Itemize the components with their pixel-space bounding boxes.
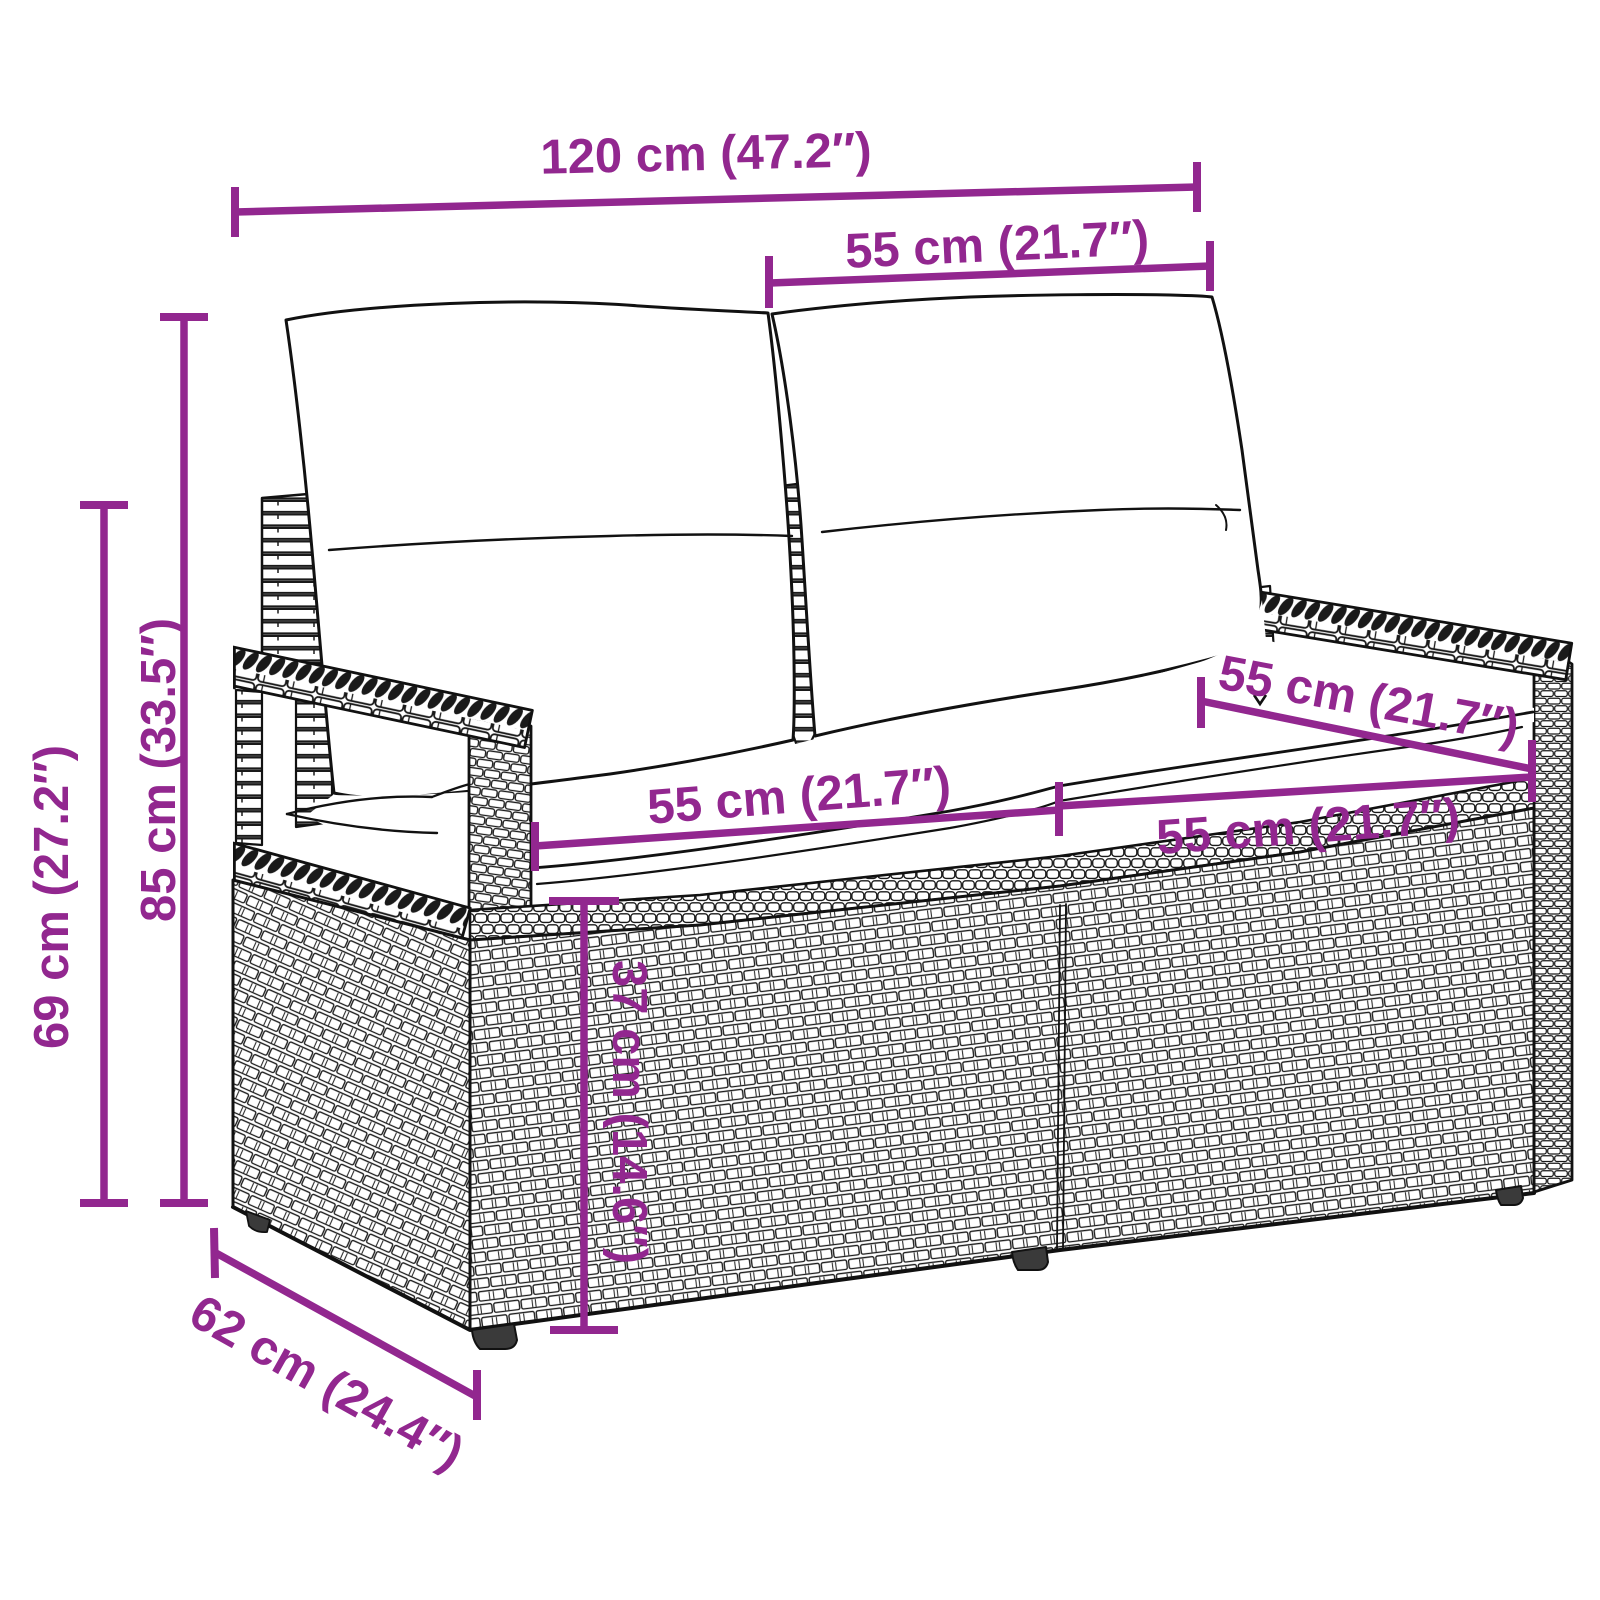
svg-text:85 cm (33.5″): 85 cm (33.5″)	[132, 618, 186, 922]
svg-text:69 cm (27.2″): 69 cm (27.2″)	[25, 745, 79, 1049]
svg-text:120 cm (47.2″): 120 cm (47.2″)	[540, 123, 872, 185]
svg-text:37 cm (14.6″): 37 cm (14.6″)	[602, 960, 656, 1264]
